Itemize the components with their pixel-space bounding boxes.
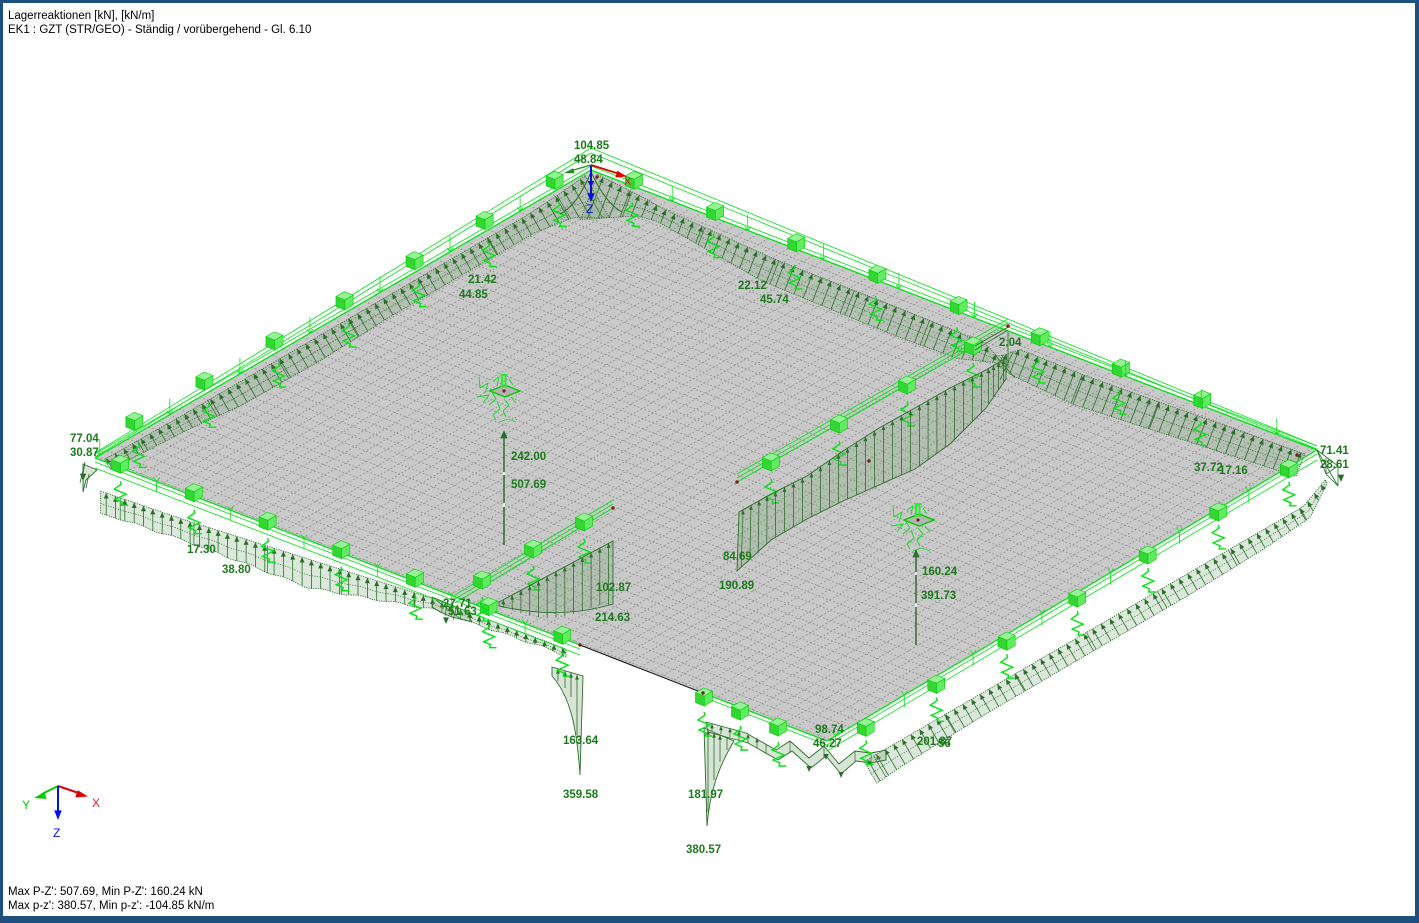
svg-text:77.04: 77.04 <box>70 433 99 445</box>
svg-text:46.27: 46.27 <box>813 738 842 750</box>
svg-text:EK1 : GZT (STR/GEO) - Ständig: EK1 : GZT (STR/GEO) - Ständig / vorüberg… <box>8 24 311 36</box>
svg-text:30.87: 30.87 <box>70 447 99 459</box>
svg-text:51.63: 51.63 <box>448 606 477 618</box>
svg-text:38.80: 38.80 <box>222 564 251 576</box>
svg-text:190.89: 190.89 <box>719 580 754 592</box>
svg-text:Max p-z': 380.57, Min p-z': -1: Max p-z': 380.57, Min p-z': -104.85 kN/m <box>8 900 214 912</box>
svg-text:391.73: 391.73 <box>921 590 956 602</box>
svg-text:48.84: 48.84 <box>574 154 603 166</box>
svg-text:Y: Y <box>22 798 30 812</box>
svg-text:Max P-Z': 507.69, Min P-Z': 16: Max P-Z': 507.69, Min P-Z': 160.24 kN <box>8 886 203 898</box>
svg-text:71.41: 71.41 <box>1320 445 1349 457</box>
svg-text:Z: Z <box>53 826 60 840</box>
svg-text:X: X <box>92 796 100 810</box>
svg-text:181.97: 181.97 <box>688 789 723 801</box>
svg-text:17.16: 17.16 <box>1219 465 1248 477</box>
svg-text:Lagerreaktionen [kN], [kN/m]: Lagerreaktionen [kN], [kN/m] <box>8 10 154 22</box>
svg-text:507.69: 507.69 <box>511 479 546 491</box>
svg-text:22.12: 22.12 <box>738 280 767 292</box>
svg-text:84.69: 84.69 <box>723 551 752 563</box>
svg-text:104.85: 104.85 <box>574 140 610 152</box>
svg-text:380.57: 380.57 <box>686 844 721 856</box>
svg-text:98.74: 98.74 <box>815 724 844 736</box>
svg-text:2.04: 2.04 <box>999 337 1022 349</box>
svg-text:242.00: 242.00 <box>511 451 546 463</box>
svg-text:102.87: 102.87 <box>596 582 631 594</box>
svg-text:44.85: 44.85 <box>459 289 488 301</box>
svg-text:17.30: 17.30 <box>187 544 216 556</box>
svg-text:Z: Z <box>586 202 593 216</box>
svg-text:56: 56 <box>938 738 951 750</box>
svg-text:45.74: 45.74 <box>760 294 789 306</box>
svg-text:21.42: 21.42 <box>468 274 497 286</box>
svg-text:359.58: 359.58 <box>563 789 599 801</box>
svg-text:163.64: 163.64 <box>563 735 599 747</box>
svg-text:28.61: 28.61 <box>1320 459 1349 471</box>
svg-text:X: X <box>624 176 632 188</box>
svg-text:214.63: 214.63 <box>595 612 630 624</box>
svg-text:160.24: 160.24 <box>922 566 958 578</box>
